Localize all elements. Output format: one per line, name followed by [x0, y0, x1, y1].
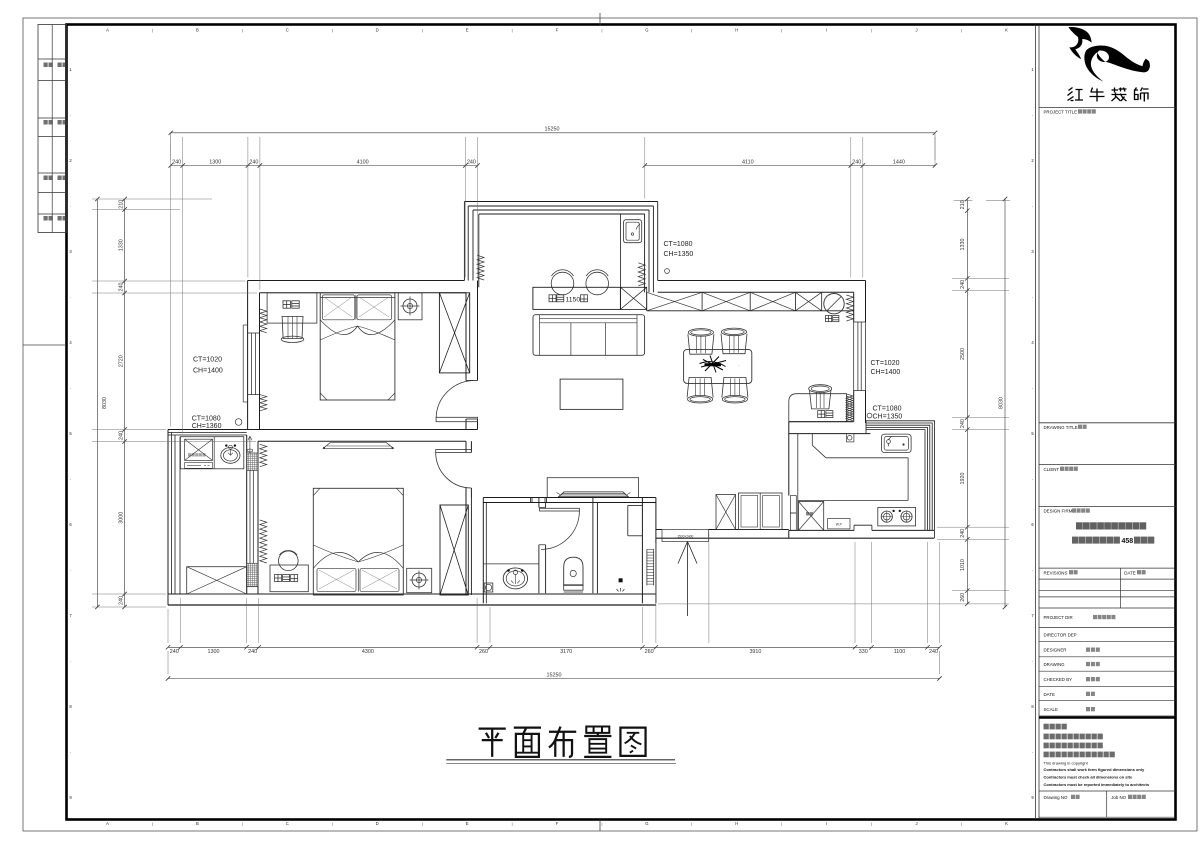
svg-text:|: |: [602, 822, 603, 826]
svg-text:H: H: [735, 821, 738, 826]
svg-text:1920: 1920: [960, 472, 966, 484]
svg-text:|: |: [152, 29, 153, 33]
svg-text:240: 240: [118, 431, 124, 440]
svg-text:240: 240: [960, 529, 966, 538]
svg-text:DATE: DATE: [1044, 692, 1055, 697]
svg-text:DATE: DATE: [1124, 570, 1135, 575]
svg-text:240: 240: [852, 159, 861, 165]
svg-text:260: 260: [960, 593, 966, 602]
svg-text:240: 240: [960, 419, 966, 428]
svg-text:SCALE: SCALE: [1044, 707, 1058, 712]
svg-text:A: A: [106, 28, 109, 33]
svg-text:This drawing in copyright: This drawing in copyright: [1044, 760, 1089, 765]
svg-text:1440: 1440: [893, 159, 905, 165]
svg-text:|: |: [602, 29, 603, 33]
svg-text:C: C: [286, 28, 289, 33]
svg-text:CT=1080: CT=1080: [873, 405, 902, 412]
svg-text:2720: 2720: [118, 355, 124, 367]
svg-text:G: G: [645, 821, 648, 826]
svg-text:|: |: [242, 29, 243, 33]
svg-text:D: D: [376, 28, 379, 33]
svg-text:3910: 3910: [749, 649, 761, 655]
svg-text:|: |: [871, 29, 872, 33]
svg-text:D: D: [376, 821, 379, 826]
svg-text:CHECKED BY: CHECKED BY: [1044, 677, 1073, 682]
svg-text:8030: 8030: [102, 397, 108, 409]
svg-text:|: |: [332, 822, 333, 826]
svg-text:A: A: [106, 821, 109, 826]
svg-text:240: 240: [118, 283, 124, 292]
svg-text:|: |: [512, 822, 513, 826]
svg-text:I: I: [826, 821, 827, 826]
svg-text:Contractors must check all dim: Contractors must check all dimensions on…: [1044, 775, 1133, 780]
svg-text:|: |: [961, 822, 962, 826]
svg-text:Contractors must be reported i: Contractors must be reported immediately…: [1044, 782, 1150, 787]
svg-text:REVISIONS: REVISIONS: [1044, 570, 1068, 575]
svg-text:B: B: [196, 28, 199, 33]
svg-text:|: |: [781, 822, 782, 826]
svg-text:|: |: [242, 822, 243, 826]
svg-text:F: F: [556, 821, 559, 826]
svg-text:J: J: [916, 28, 918, 33]
svg-text:1330: 1330: [118, 239, 124, 251]
svg-text:4100: 4100: [357, 159, 369, 165]
svg-text:|: |: [691, 822, 692, 826]
svg-text:CT=1020: CT=1020: [871, 360, 900, 367]
svg-text:CLIENT: CLIENT: [1044, 467, 1060, 472]
svg-text:240: 240: [960, 280, 966, 289]
svg-text:240: 240: [172, 159, 181, 165]
svg-text:CT=1080: CT=1080: [192, 415, 221, 422]
svg-text:2500: 2500: [960, 348, 966, 360]
svg-text:240: 240: [929, 649, 938, 655]
svg-text:458: 458: [1122, 538, 1134, 545]
svg-text:CH=1400: CH=1400: [193, 368, 223, 375]
svg-text:B: B: [196, 821, 199, 826]
svg-text:1100: 1100: [894, 649, 906, 655]
svg-text:CH=1350: CH=1350: [664, 251, 694, 258]
svg-text:C: C: [286, 821, 289, 826]
svg-text:210: 210: [960, 200, 966, 209]
svg-text:240: 240: [170, 649, 179, 655]
svg-text:|: |: [691, 29, 692, 33]
svg-text:CH=1360: CH=1360: [192, 423, 222, 430]
svg-text:DESIGN FIRM: DESIGN FIRM: [1044, 509, 1073, 514]
svg-text:F: F: [556, 28, 559, 33]
svg-text:K: K: [1005, 821, 1008, 826]
svg-text:W.P: W.P: [836, 522, 843, 526]
svg-text:1330: 1330: [960, 239, 966, 251]
svg-text:15250: 15250: [545, 126, 560, 132]
svg-text:DESIGNER: DESIGNER: [1044, 648, 1067, 653]
svg-text:8030: 8030: [999, 397, 1005, 409]
svg-text:4110: 4110: [742, 159, 754, 165]
svg-text:|: |: [512, 29, 513, 33]
svg-text:240: 240: [248, 649, 257, 655]
svg-text:CT=1080: CT=1080: [664, 241, 693, 248]
svg-text:PROJECT DIR: PROJECT DIR: [1044, 615, 1073, 620]
svg-text:E: E: [466, 821, 469, 826]
svg-text:Contractors shall work form fi: Contractors shall work form figured dime…: [1044, 767, 1145, 772]
svg-text:240: 240: [118, 596, 124, 605]
svg-text:CT=1020: CT=1020: [193, 357, 222, 364]
svg-text:1300: 1300: [208, 649, 220, 655]
svg-text:CH=1400: CH=1400: [871, 369, 901, 376]
svg-text:DRAWING TITLE: DRAWING TITLE: [1044, 425, 1078, 430]
svg-text:J: J: [916, 821, 918, 826]
svg-text:210: 210: [118, 200, 124, 209]
svg-text:E: E: [466, 28, 469, 33]
svg-text:1010: 1010: [960, 559, 966, 571]
svg-text:1500×2400: 1500×2400: [677, 535, 693, 539]
svg-text:330: 330: [859, 649, 868, 655]
svg-text:240: 240: [467, 159, 476, 165]
svg-text:PROJECT TITLE: PROJECT TITLE: [1044, 110, 1078, 115]
svg-text:|: |: [781, 29, 782, 33]
svg-text:Drawing NO: Drawing NO: [1044, 795, 1068, 800]
svg-text:3170: 3170: [560, 649, 572, 655]
svg-text:..: ..: [738, 363, 740, 367]
svg-text:DIRECTOR DEP: DIRECTOR DEP: [1044, 633, 1077, 638]
svg-text:1150: 1150: [566, 296, 581, 303]
svg-text:|: |: [422, 822, 423, 826]
svg-text:|: |: [961, 29, 962, 33]
svg-text:CH=1350: CH=1350: [873, 414, 903, 421]
svg-text:260: 260: [479, 649, 488, 655]
svg-text:|: |: [422, 29, 423, 33]
svg-text:DRAWING: DRAWING: [1044, 662, 1066, 667]
svg-text:|: |: [332, 29, 333, 33]
svg-text:Job NO: Job NO: [1111, 795, 1126, 800]
svg-text:3000: 3000: [118, 512, 124, 524]
svg-text:K: K: [1005, 28, 1008, 33]
svg-text:H: H: [735, 28, 738, 33]
svg-text:1300: 1300: [209, 159, 221, 165]
svg-text:240: 240: [249, 159, 258, 165]
svg-text:|: |: [152, 822, 153, 826]
svg-text:260: 260: [645, 649, 654, 655]
svg-text:|: |: [871, 822, 872, 826]
svg-text:4300: 4300: [362, 649, 374, 655]
svg-text:G: G: [645, 28, 648, 33]
svg-text:I: I: [826, 28, 827, 33]
svg-text:15250: 15250: [547, 672, 562, 678]
